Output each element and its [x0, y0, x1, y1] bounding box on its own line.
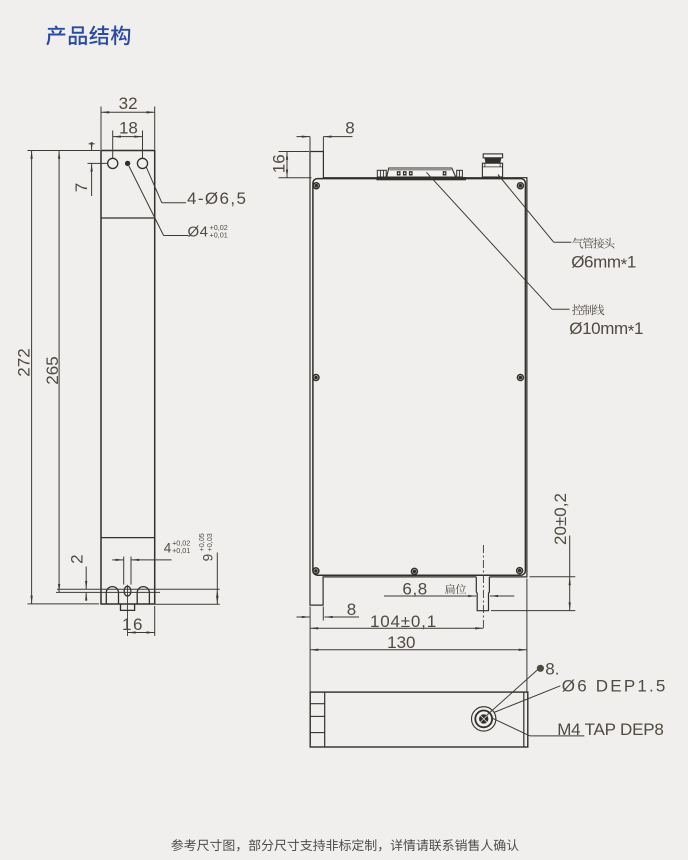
- svg-text:265: 265: [43, 356, 62, 384]
- svg-text:Ø6mm*1: Ø6mm*1: [571, 252, 636, 274]
- svg-text:20±0,2: 20±0,2: [551, 493, 570, 545]
- svg-text:+0,03: +0,03: [205, 533, 214, 551]
- svg-text:Ø4: Ø4: [188, 224, 209, 241]
- svg-text:8: 8: [347, 600, 356, 619]
- svg-text:Ø10mm*1: Ø10mm*1: [569, 319, 643, 341]
- svg-text:32: 32: [119, 94, 138, 113]
- svg-text:272: 272: [14, 348, 33, 376]
- svg-text:2: 2: [68, 554, 87, 563]
- svg-text:4: 4: [164, 541, 172, 556]
- svg-text:8.: 8.: [545, 659, 559, 678]
- svg-text:M4 TAP DEP8: M4 TAP DEP8: [557, 720, 663, 739]
- svg-text:7: 7: [72, 183, 91, 192]
- svg-text:8: 8: [345, 118, 354, 137]
- svg-text:+0,01: +0,01: [172, 546, 190, 555]
- svg-text:9: 9: [201, 554, 216, 562]
- svg-text:Ø6 DEP1.5: Ø6 DEP1.5: [562, 677, 668, 696]
- svg-text:4-Ø6,5: 4-Ø6,5: [187, 189, 247, 208]
- svg-text:16: 16: [270, 154, 289, 173]
- svg-text:+0,01: +0,01: [210, 230, 228, 239]
- svg-text:18: 18: [119, 119, 138, 138]
- svg-text:16: 16: [122, 615, 144, 634]
- svg-text:130: 130: [387, 633, 415, 652]
- svg-text:6,8: 6,8: [402, 579, 427, 598]
- svg-text:104±0,1: 104±0,1: [370, 612, 437, 631]
